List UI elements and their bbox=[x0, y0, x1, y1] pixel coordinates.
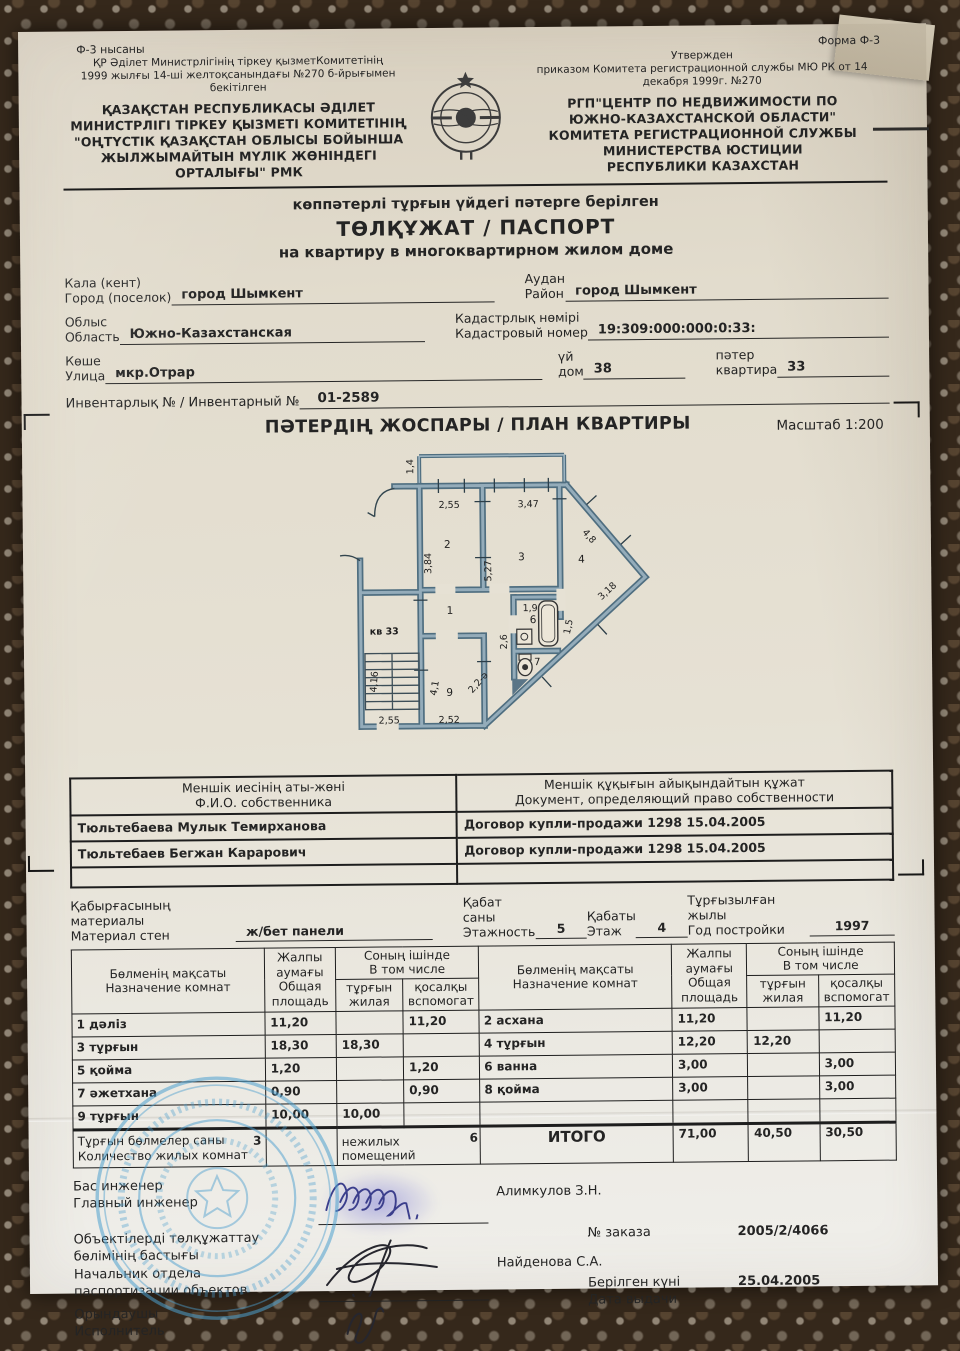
dimension-label: 5,27 bbox=[483, 560, 494, 581]
district-label: АуданРайон bbox=[525, 270, 566, 300]
owners-col-document: Меншік құқығын айықындайтын құжатДокумен… bbox=[456, 770, 892, 811]
floors-value: 5 bbox=[535, 921, 587, 939]
house-value: 38 bbox=[584, 360, 686, 379]
material-label: Қабырғасының материалыМатериал стен bbox=[70, 897, 236, 944]
room-number: 3 bbox=[518, 551, 525, 563]
corner-mark bbox=[898, 859, 924, 875]
building-info: Қабырғасының материалыМатериал стен ж/бе… bbox=[70, 891, 894, 944]
dimension-label: 1,4 bbox=[405, 459, 416, 474]
aux-area: 30,50 bbox=[820, 1122, 897, 1161]
col-purpose-left: Бөлменің мақсатыНазначение комнат bbox=[71, 948, 264, 1013]
dimension-label: 4,16 bbox=[368, 671, 381, 693]
floor-plan: 1,4 2,55 3,47 2 3 3,84 5,27 4,8 4 3,18 1… bbox=[334, 437, 689, 762]
street-value: мкр.Отрар bbox=[105, 362, 542, 384]
org-kz-line: ОРТАЛЫҒЫ" РМК bbox=[63, 164, 415, 183]
col-aux-left: қосалқывспомогат bbox=[403, 978, 480, 1011]
city-value: город Шымкент bbox=[171, 284, 495, 305]
dept-head-name: Найденова С.А. bbox=[488, 1226, 602, 1270]
header-russian-block: Форма Ф-3 Утвержден приказом Комитета ре… bbox=[517, 34, 887, 177]
header: Ф-3 нысаны ҚР Әділет Министрлігінің тірк… bbox=[62, 34, 887, 183]
dimension-label: 2,6 bbox=[499, 634, 510, 649]
cadastre-value: 19:309:000:000:0:33: bbox=[588, 319, 889, 340]
owners-table: Меншік иесінің аты-жөніФ.И.О. собственни… bbox=[69, 769, 894, 888]
order-number-value: 2005/2/4066 bbox=[737, 1223, 828, 1241]
dimension-label: 4,1 bbox=[428, 680, 441, 697]
oblast-value: Южно-Казахстанская bbox=[120, 324, 426, 345]
dimension-label: 3,84 bbox=[423, 553, 434, 574]
issue-date-value: 25.04.2005 bbox=[738, 1274, 821, 1309]
apartment-value: 33 bbox=[777, 358, 889, 377]
total-area: 71,00 bbox=[673, 1123, 749, 1162]
order-number-label: № заказа bbox=[587, 1224, 737, 1242]
floor-value: 4 bbox=[636, 920, 688, 938]
plan-scale: Масштаб 1:200 bbox=[776, 416, 884, 433]
room-number: 9 bbox=[446, 687, 453, 699]
dimension-label: 3,18 bbox=[596, 580, 619, 602]
chief-engineer-name: Алимкулов З.Н. bbox=[488, 1173, 602, 1199]
col-incl-right: Соның ішіндеВ том числе bbox=[747, 942, 895, 975]
inventory-value: 01-2589 bbox=[299, 384, 889, 409]
order-block: № заказа 2005/2/4066 Берілген күніДата в… bbox=[587, 1222, 888, 1310]
header-divider bbox=[64, 181, 888, 191]
plan-section: ПӘТЕРДІҢ ЖОСПАРЫ / ПЛАН КВАРТИРЫ Масштаб… bbox=[66, 411, 890, 439]
dimension-label: 2,55 bbox=[379, 715, 400, 726]
house-label: үйдом bbox=[558, 348, 584, 378]
year-value: 1997 bbox=[809, 918, 894, 937]
owners-col-name: Меншік иесінің аты-жөніФ.И.О. собственни… bbox=[70, 775, 457, 816]
col-purpose-right: Бөлменің мақсатыНазначение комнат bbox=[479, 944, 672, 1009]
chief-engineer-signature bbox=[318, 1174, 488, 1225]
inventory-label: Инвентарлық № / Инвентарный № bbox=[65, 394, 299, 411]
dimension-label: 2,55 bbox=[439, 500, 460, 511]
living-area: 40,50 bbox=[748, 1122, 820, 1161]
plan-title: ПӘТЕРДІҢ ЖОСПАРЫ / ПЛАН КВАРТИРЫ bbox=[265, 413, 691, 437]
cadastre-label: Кадастрлық нөміріКадастровый номер bbox=[455, 309, 588, 340]
col-total-left: ЖалпыаумағыОбщаяплощадь bbox=[264, 947, 336, 1011]
dimension-label: 2,52 bbox=[439, 715, 460, 726]
city-label: Кала (кент)Город (поселок) bbox=[64, 274, 171, 305]
corner-mark bbox=[24, 413, 50, 429]
header-kazakh-block: Ф-3 нысаны ҚР Әділет Министрлігінің тірк… bbox=[62, 38, 415, 183]
apartment-number-label: кв 33 bbox=[370, 626, 399, 637]
nonliving-count: нежилых помещений 6 bbox=[337, 1126, 481, 1165]
floors-label: Қабат саныЭтажность bbox=[463, 894, 536, 940]
district-value: город Шымкент bbox=[565, 280, 889, 301]
col-aux-right: қосалқывспомогат bbox=[818, 974, 895, 1007]
col-living-right: тұрғынжилая bbox=[747, 975, 819, 1007]
dimension-label: 4,8 bbox=[580, 527, 598, 546]
floor-label: ҚабатыЭтаж bbox=[587, 908, 636, 938]
dimension-label: 1,9 bbox=[523, 603, 538, 614]
room-number: 2 bbox=[444, 539, 451, 551]
owner-name: Тюльтебаева Мулык Темирханова bbox=[71, 812, 458, 842]
owner-name: Тюльтебаев Бегжан Карарович bbox=[71, 838, 458, 868]
round-stamp bbox=[90, 1071, 344, 1325]
itogo-label: ИТОГО bbox=[480, 1124, 673, 1164]
col-total-right: ЖалпыаумағыОбщаяплощадь bbox=[671, 944, 747, 1008]
floor-plan-drawing: 1,4 2,55 3,47 2 3 3,84 5,27 4,8 4 3,18 1… bbox=[334, 437, 689, 758]
address-fields: Кала (кент)Город (поселок) город Шымкент… bbox=[64, 267, 889, 411]
dimension-label: 1,5 bbox=[562, 618, 576, 635]
document-paper: Ф-3 нысаны ҚР Әділет Министрлігінің тірк… bbox=[18, 23, 938, 1294]
room-number: 6 bbox=[530, 614, 537, 626]
apartment-label: пәтерквартира bbox=[716, 346, 778, 377]
col-incl-left: Соның ішіндеВ том числе bbox=[335, 946, 479, 979]
room-number: 7 bbox=[534, 657, 540, 668]
oblast-label: ОблысОбласть bbox=[65, 314, 120, 345]
corner-mark bbox=[894, 401, 920, 417]
document-title: көппәтерлі тұрғын үйдегі пәтерге берілге… bbox=[64, 191, 889, 265]
material-value: ж/бет панели bbox=[236, 922, 433, 942]
room-number: 4 bbox=[578, 553, 585, 565]
dept-head-signature bbox=[319, 1233, 490, 1302]
room-number: 1 bbox=[447, 605, 454, 617]
dimension-label: 3,47 bbox=[518, 499, 539, 510]
org-ru-line: РЕСПУБЛИКИ КАЗАХСТАН bbox=[519, 157, 888, 177]
corner-mark bbox=[28, 855, 54, 871]
year-label: Тұрғызылған жылыГод постройки bbox=[687, 891, 809, 937]
kazakhstan-emblem-icon bbox=[413, 37, 518, 166]
street-label: КөшеУлица bbox=[65, 353, 105, 383]
col-living-left: тұрғынжилая bbox=[336, 979, 403, 1011]
